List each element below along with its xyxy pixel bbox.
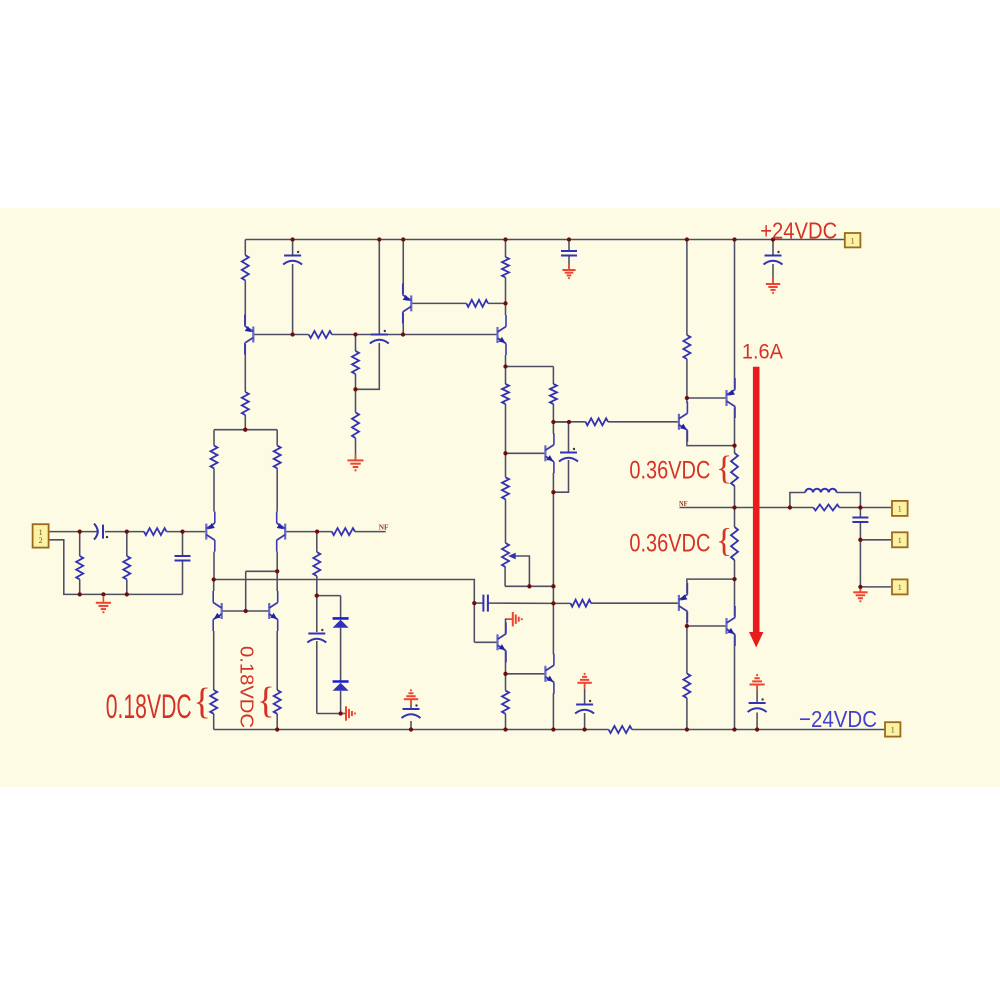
svg-text:{: { [257,680,275,721]
svg-text:0.18VDC: 0.18VDC [237,646,258,728]
svg-text:{: { [716,523,732,560]
svg-text:{: { [716,450,732,487]
svg-text:2: 2 [39,536,43,545]
svg-text:1: 1 [898,536,902,545]
svg-text:1.6A: 1.6A [742,341,783,364]
svg-text:1: 1 [851,236,855,245]
svg-text:+24VDC: +24VDC [760,217,837,243]
svg-text:0.18VDC: 0.18VDC [106,688,192,726]
svg-text:NF: NF [379,522,389,531]
svg-text:1: 1 [898,505,902,514]
svg-text:1: 1 [898,583,902,592]
svg-text:1: 1 [891,726,895,735]
svg-text:0.36VDC: 0.36VDC [629,457,710,485]
svg-text:−24VDC: −24VDC [799,706,877,732]
svg-text:{: { [193,681,211,722]
svg-text:0.36VDC: 0.36VDC [629,530,710,558]
svg-text:NF: NF [679,499,688,508]
